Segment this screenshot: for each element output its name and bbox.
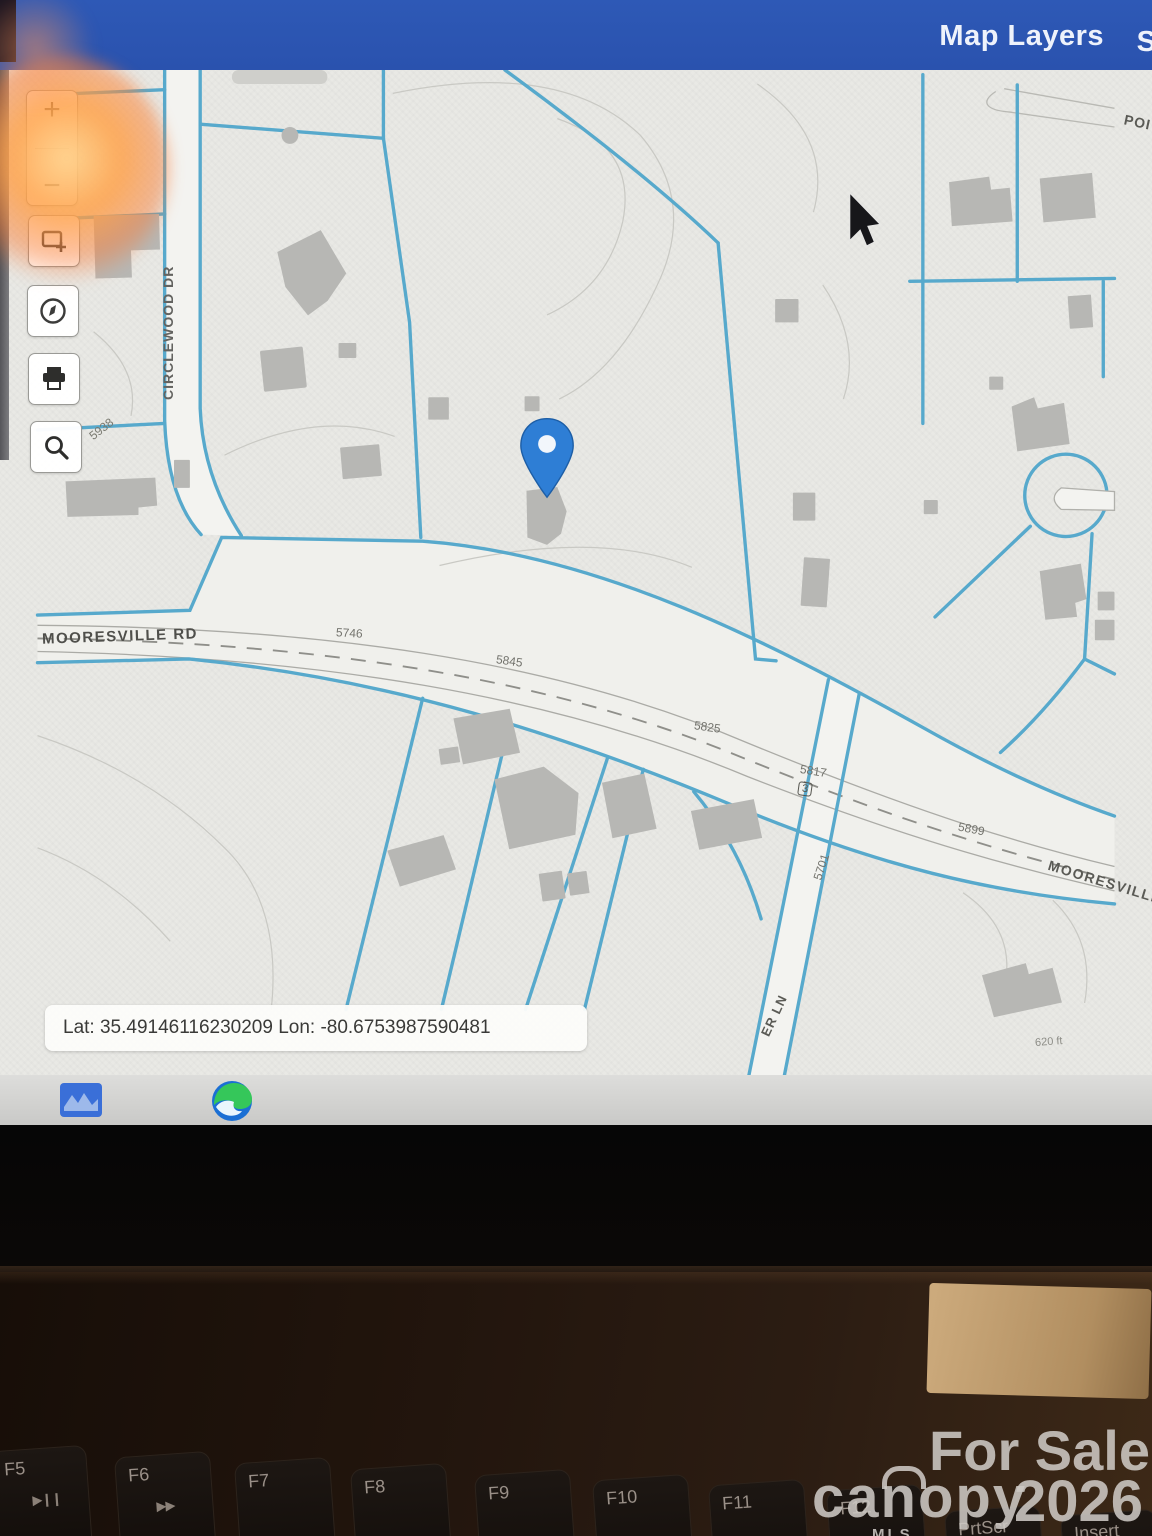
gis-map-canvas[interactable]: CIRCLEWOOD DR 5938 MOORESVILLE RD 5746 5… bbox=[0, 70, 1152, 1075]
compass-button[interactable] bbox=[27, 285, 79, 337]
key-f8[interactable]: F8 bbox=[350, 1463, 454, 1536]
search-button[interactable] bbox=[30, 421, 82, 473]
key-f6[interactable]: F6▶▶ bbox=[114, 1451, 218, 1536]
divider bbox=[35, 148, 69, 149]
zoom-extent-button[interactable] bbox=[28, 215, 80, 267]
print-button[interactable] bbox=[28, 353, 80, 405]
search-icon bbox=[42, 433, 70, 461]
paper-object bbox=[927, 1283, 1152, 1399]
key-f5[interactable]: F5▶❙❙ bbox=[0, 1445, 94, 1536]
key-f7[interactable]: F7 bbox=[234, 1457, 338, 1536]
photo-corner-shadow bbox=[0, 0, 16, 62]
route-shield-3: 3 bbox=[797, 781, 813, 797]
zoom-out-icon[interactable]: − bbox=[43, 173, 61, 199]
key-f9[interactable]: F9 bbox=[474, 1469, 578, 1536]
key-f12[interactable]: F12 bbox=[826, 1484, 930, 1536]
rectangle-plus-icon bbox=[40, 227, 68, 255]
laptop-hinge bbox=[0, 1266, 1152, 1284]
zoom-control[interactable]: + − bbox=[26, 90, 78, 206]
parcel-map-graphics bbox=[0, 70, 1152, 1075]
parcel-label-5746: 5746 bbox=[336, 625, 363, 640]
photo-of-laptop-screen: Map Layers S bbox=[0, 0, 1152, 1536]
street-label-circlewood: CIRCLEWOOD DR bbox=[160, 230, 176, 400]
app-header: Map Layers S bbox=[0, 0, 1152, 70]
key-f11[interactable]: F11 bbox=[708, 1479, 812, 1536]
windows-taskbar[interactable] bbox=[0, 1075, 1152, 1125]
edge-browser-icon[interactable] bbox=[210, 1079, 254, 1123]
key-prtscr[interactable]: PrtScr bbox=[944, 1505, 1048, 1536]
coordinates-text: Lat: 35.49146116230209 Lon: -80.67539875… bbox=[63, 1017, 491, 1039]
laptop-bezel: DELL bbox=[0, 1125, 1152, 1272]
screen-edge-sliver bbox=[0, 70, 9, 460]
app-tile-icon[interactable] bbox=[60, 1081, 102, 1119]
mouse-cursor-icon bbox=[850, 193, 880, 245]
map-layers-button[interactable]: Map Layers bbox=[939, 20, 1104, 53]
coordinates-readout: Lat: 35.49146116230209 Lon: -80.67539875… bbox=[45, 1005, 587, 1051]
location-pin-icon bbox=[521, 419, 573, 498]
measurement-label: 620 ft bbox=[1035, 1035, 1063, 1049]
printer-icon bbox=[39, 364, 69, 394]
compass-icon bbox=[38, 296, 68, 326]
header-partial-text: S bbox=[1137, 26, 1152, 59]
zoom-in-icon[interactable]: + bbox=[43, 97, 61, 123]
key-f10[interactable]: F10 bbox=[592, 1474, 696, 1536]
